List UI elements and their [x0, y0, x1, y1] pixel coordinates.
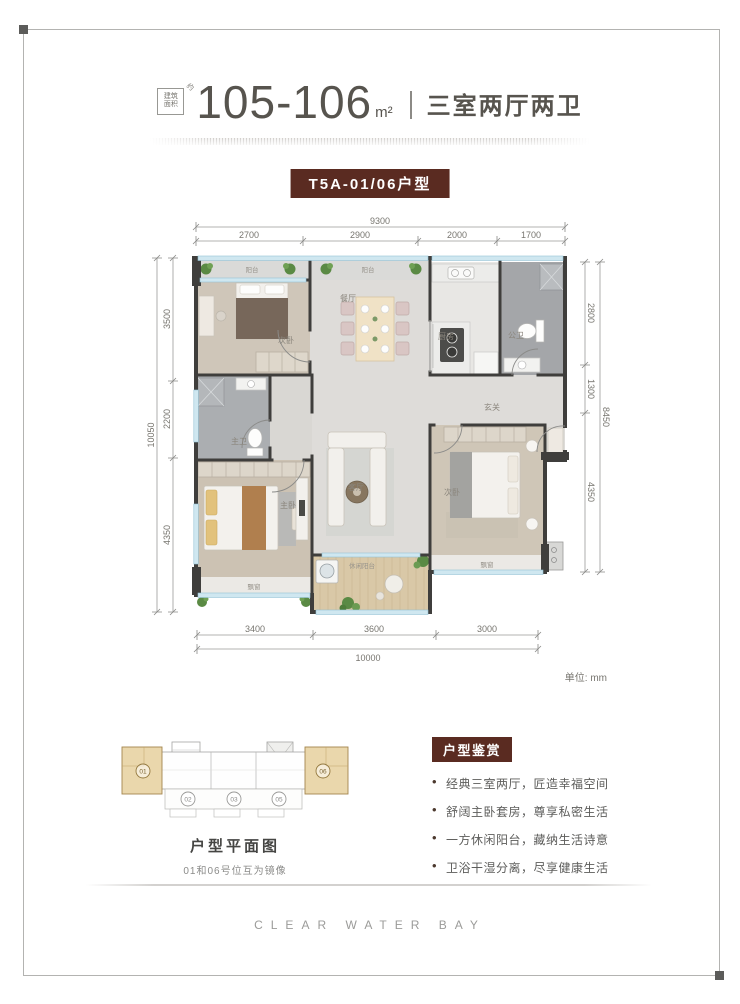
- layout-text: 三室两厅两卫: [427, 86, 583, 121]
- header-title: 建筑 面积 约 105-106 m² 三室两厅两卫: [0, 84, 740, 122]
- keyplan-section: 01 02 03 05 06 户型平面图 01和06号位互为镜像: [95, 736, 375, 877]
- area-unit: m²: [375, 104, 393, 121]
- frame-corner-square-topleft: [19, 25, 28, 34]
- feature-item: 卫浴干湿分离，尽享健康生活: [432, 859, 660, 876]
- dim-bottom-overall: 10000: [355, 653, 380, 663]
- keyplan-unit-03: 03: [230, 797, 238, 804]
- room-label-bay-bedroom: 飘窗: [481, 560, 494, 569]
- keyplan-note: 01和06号位互为镜像: [95, 862, 375, 877]
- room-label-master: 主卧: [280, 500, 296, 510]
- dim-top-overall: 9300: [370, 216, 390, 226]
- area-badge: 建筑 面积 约: [157, 88, 184, 115]
- frame-corner-square-bottomright: [715, 971, 724, 980]
- room-label-leisure-balcony: 休闲阳台: [349, 561, 375, 570]
- room-label-balcony-right: 阳台: [362, 265, 375, 274]
- dim-left-overall: 10050: [146, 422, 156, 447]
- room-label-bath-master: 主卫: [231, 436, 247, 446]
- dim-top-4: 1700: [521, 230, 541, 240]
- dim-bottom-1: 3400: [245, 624, 265, 634]
- feature-item: 经典三室两厅，匠造幸福空间: [432, 775, 660, 792]
- dim-top-3: 2000: [447, 230, 467, 240]
- area-value: 105-106: [196, 84, 372, 122]
- title-divider: [410, 91, 412, 119]
- feature-item: 舒阔主卧套房，尊享私密生活: [432, 803, 660, 820]
- room-label-living: 客厅: [348, 482, 364, 492]
- title-hatch-divider: [150, 138, 590, 145]
- keyplan-drawing: 01 02 03 05 06: [110, 736, 360, 824]
- floor-plan: 阳台 阳台 次卧 餐厅 厨房 公卫 玄关 主卫 客厅 主卧 次卧 休闲阳台 飘窗…: [140, 212, 640, 692]
- keyplan-title: 户型平面图: [95, 835, 375, 856]
- unit-note: 单位: mm: [565, 671, 607, 684]
- brand-text: CLEAR WATER BAY: [0, 918, 740, 932]
- keyplan-unit-05: 05: [275, 797, 283, 804]
- dim-top-1: 2700: [239, 230, 259, 240]
- unit-tag-banner: T5A-01/06户型: [291, 169, 450, 198]
- room-label-balcony-left: 阳台: [246, 265, 259, 274]
- features-list: 经典三室两厅，匠造幸福空间 舒阔主卧套房，尊享私密生活 一方休闲阳台，藏纳生活诗…: [432, 775, 660, 876]
- keyplan-unit-02: 02: [184, 797, 192, 804]
- dim-right-2: 1300: [586, 379, 596, 399]
- feature-item: 一方休闲阳台，藏纳生活诗意: [432, 831, 660, 848]
- room-label-foyer: 玄关: [484, 402, 500, 412]
- area-badge-tail: 约: [185, 82, 195, 93]
- features-panel: 户型鉴赏 经典三室两厅，匠造幸福空间 舒阔主卧套房，尊享私密生活 一方休闲阳台，…: [432, 737, 660, 887]
- dim-left-2: 2200: [162, 409, 172, 429]
- room-label-dining: 餐厅: [340, 294, 356, 303]
- area-badge-line2: 面积: [164, 101, 178, 109]
- dim-bottom-2: 3600: [364, 624, 384, 634]
- features-title: 户型鉴赏: [432, 737, 512, 762]
- dim-right-overall: 8450: [601, 407, 611, 427]
- keyplan-unit-01: 01: [139, 769, 147, 776]
- dim-left-3: 4350: [162, 525, 172, 545]
- dim-right-1: 2800: [586, 303, 596, 323]
- dim-left-1: 3500: [162, 309, 172, 329]
- room-label-bay-master: 飘窗: [248, 582, 261, 591]
- keyplan-unit-06: 06: [319, 769, 327, 776]
- room-label-kitchen: 厨房: [438, 331, 454, 341]
- room-label-bath-public: 公卫: [508, 331, 524, 340]
- footer-divider: [86, 884, 652, 886]
- room-label-bedroom-right: 次卧: [444, 487, 460, 497]
- dim-bottom-3: 3000: [477, 624, 497, 634]
- dim-right-3: 4350: [586, 482, 596, 502]
- room-label-bedroom-top: 次卧: [278, 335, 294, 345]
- dim-top-2: 2900: [350, 230, 370, 240]
